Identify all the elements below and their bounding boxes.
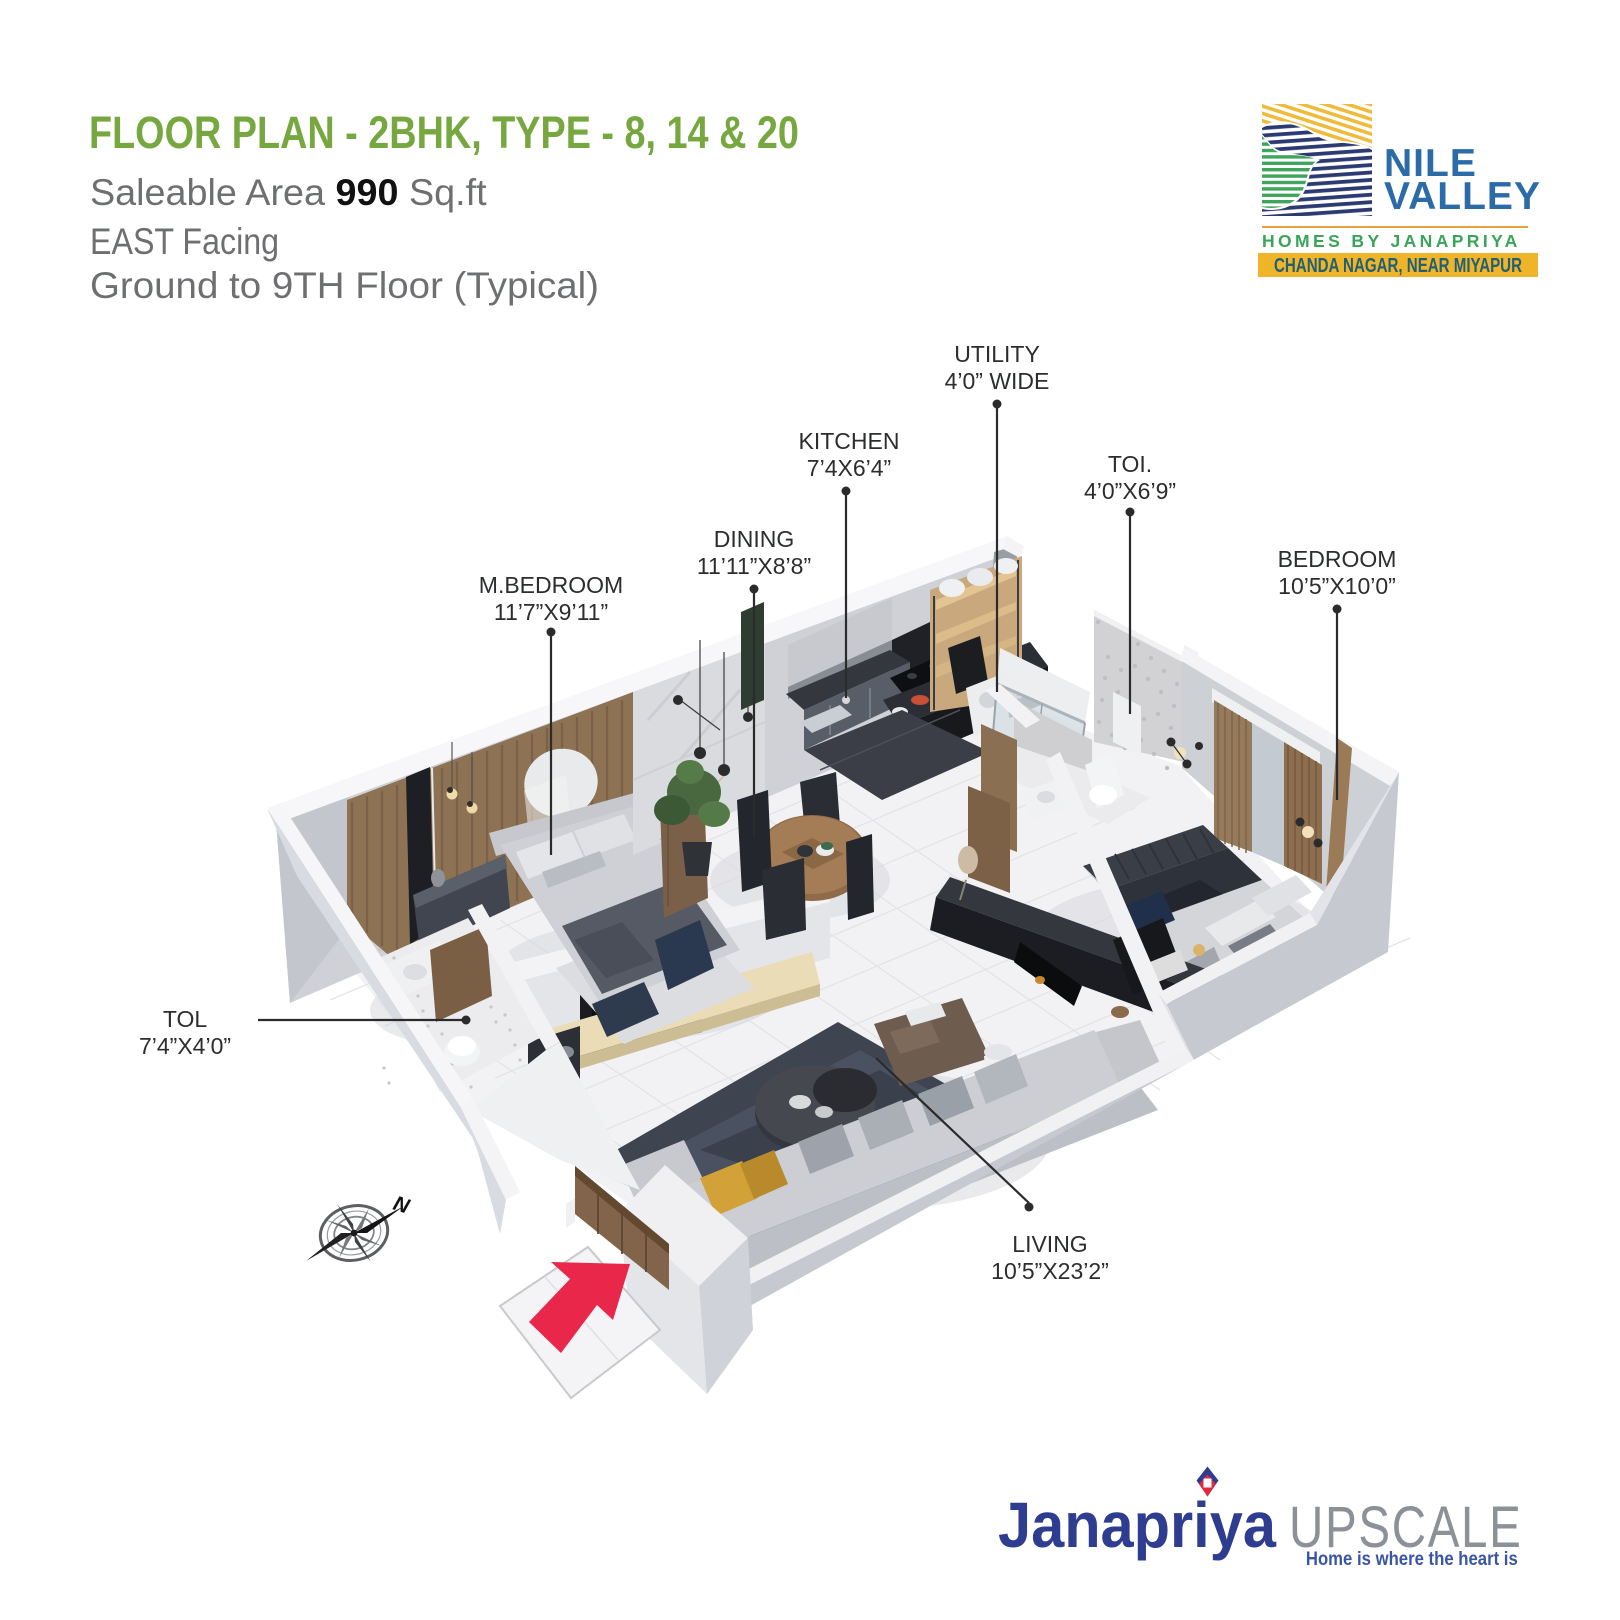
svg-text:11’7”X9’11”: 11’7”X9’11” — [494, 599, 608, 625]
svg-text:N: N — [390, 1192, 412, 1219]
svg-text:LIVING: LIVING — [1012, 1231, 1087, 1257]
svg-text:7’4”X4’0”: 7’4”X4’0” — [139, 1033, 231, 1059]
svg-text:M.BEDROOM: M.BEDROOM — [479, 572, 623, 598]
svg-text:UTILITY: UTILITY — [954, 341, 1040, 367]
svg-text:KITCHEN: KITCHEN — [799, 428, 900, 454]
svg-text:TOL: TOL — [163, 1006, 208, 1032]
svg-text:4’0”X6’9”: 4’0”X6’9” — [1084, 478, 1176, 504]
svg-text:7’4X6’4”: 7’4X6’4” — [807, 455, 891, 481]
svg-text:10’5”X23’2”: 10’5”X23’2” — [991, 1258, 1109, 1284]
svg-text:DINING: DINING — [714, 526, 795, 552]
svg-text:10’5”X10’0”: 10’5”X10’0” — [1278, 573, 1396, 599]
svg-text:BEDROOM: BEDROOM — [1278, 546, 1397, 572]
svg-text:11’11”X8’8”: 11’11”X8’8” — [697, 553, 811, 579]
svg-text:TOI.: TOI. — [1108, 451, 1152, 477]
svg-text:4’0” WIDE: 4’0” WIDE — [945, 368, 1050, 394]
